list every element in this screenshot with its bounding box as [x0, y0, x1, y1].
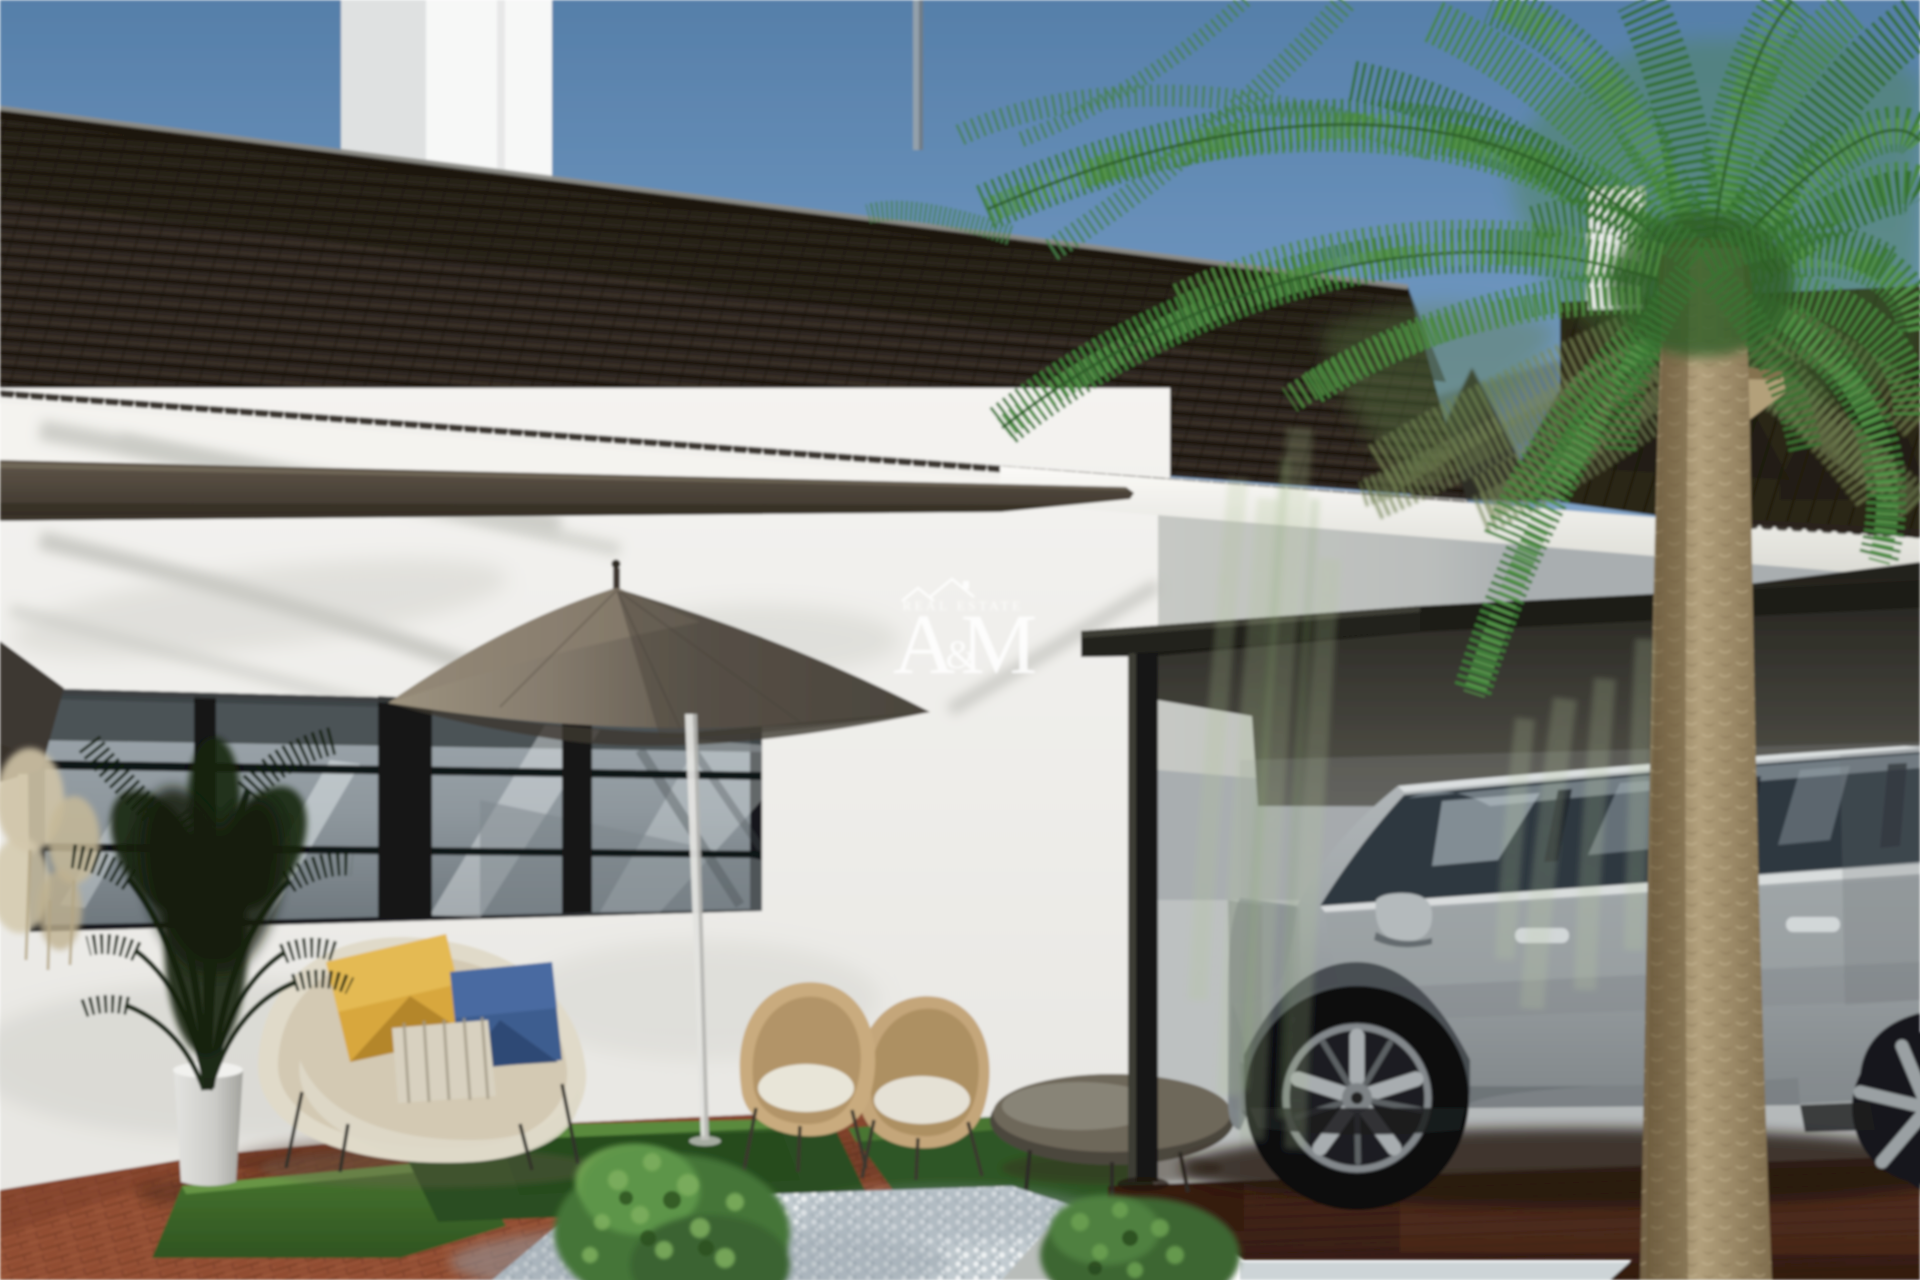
- svg-text:M: M: [961, 596, 1037, 692]
